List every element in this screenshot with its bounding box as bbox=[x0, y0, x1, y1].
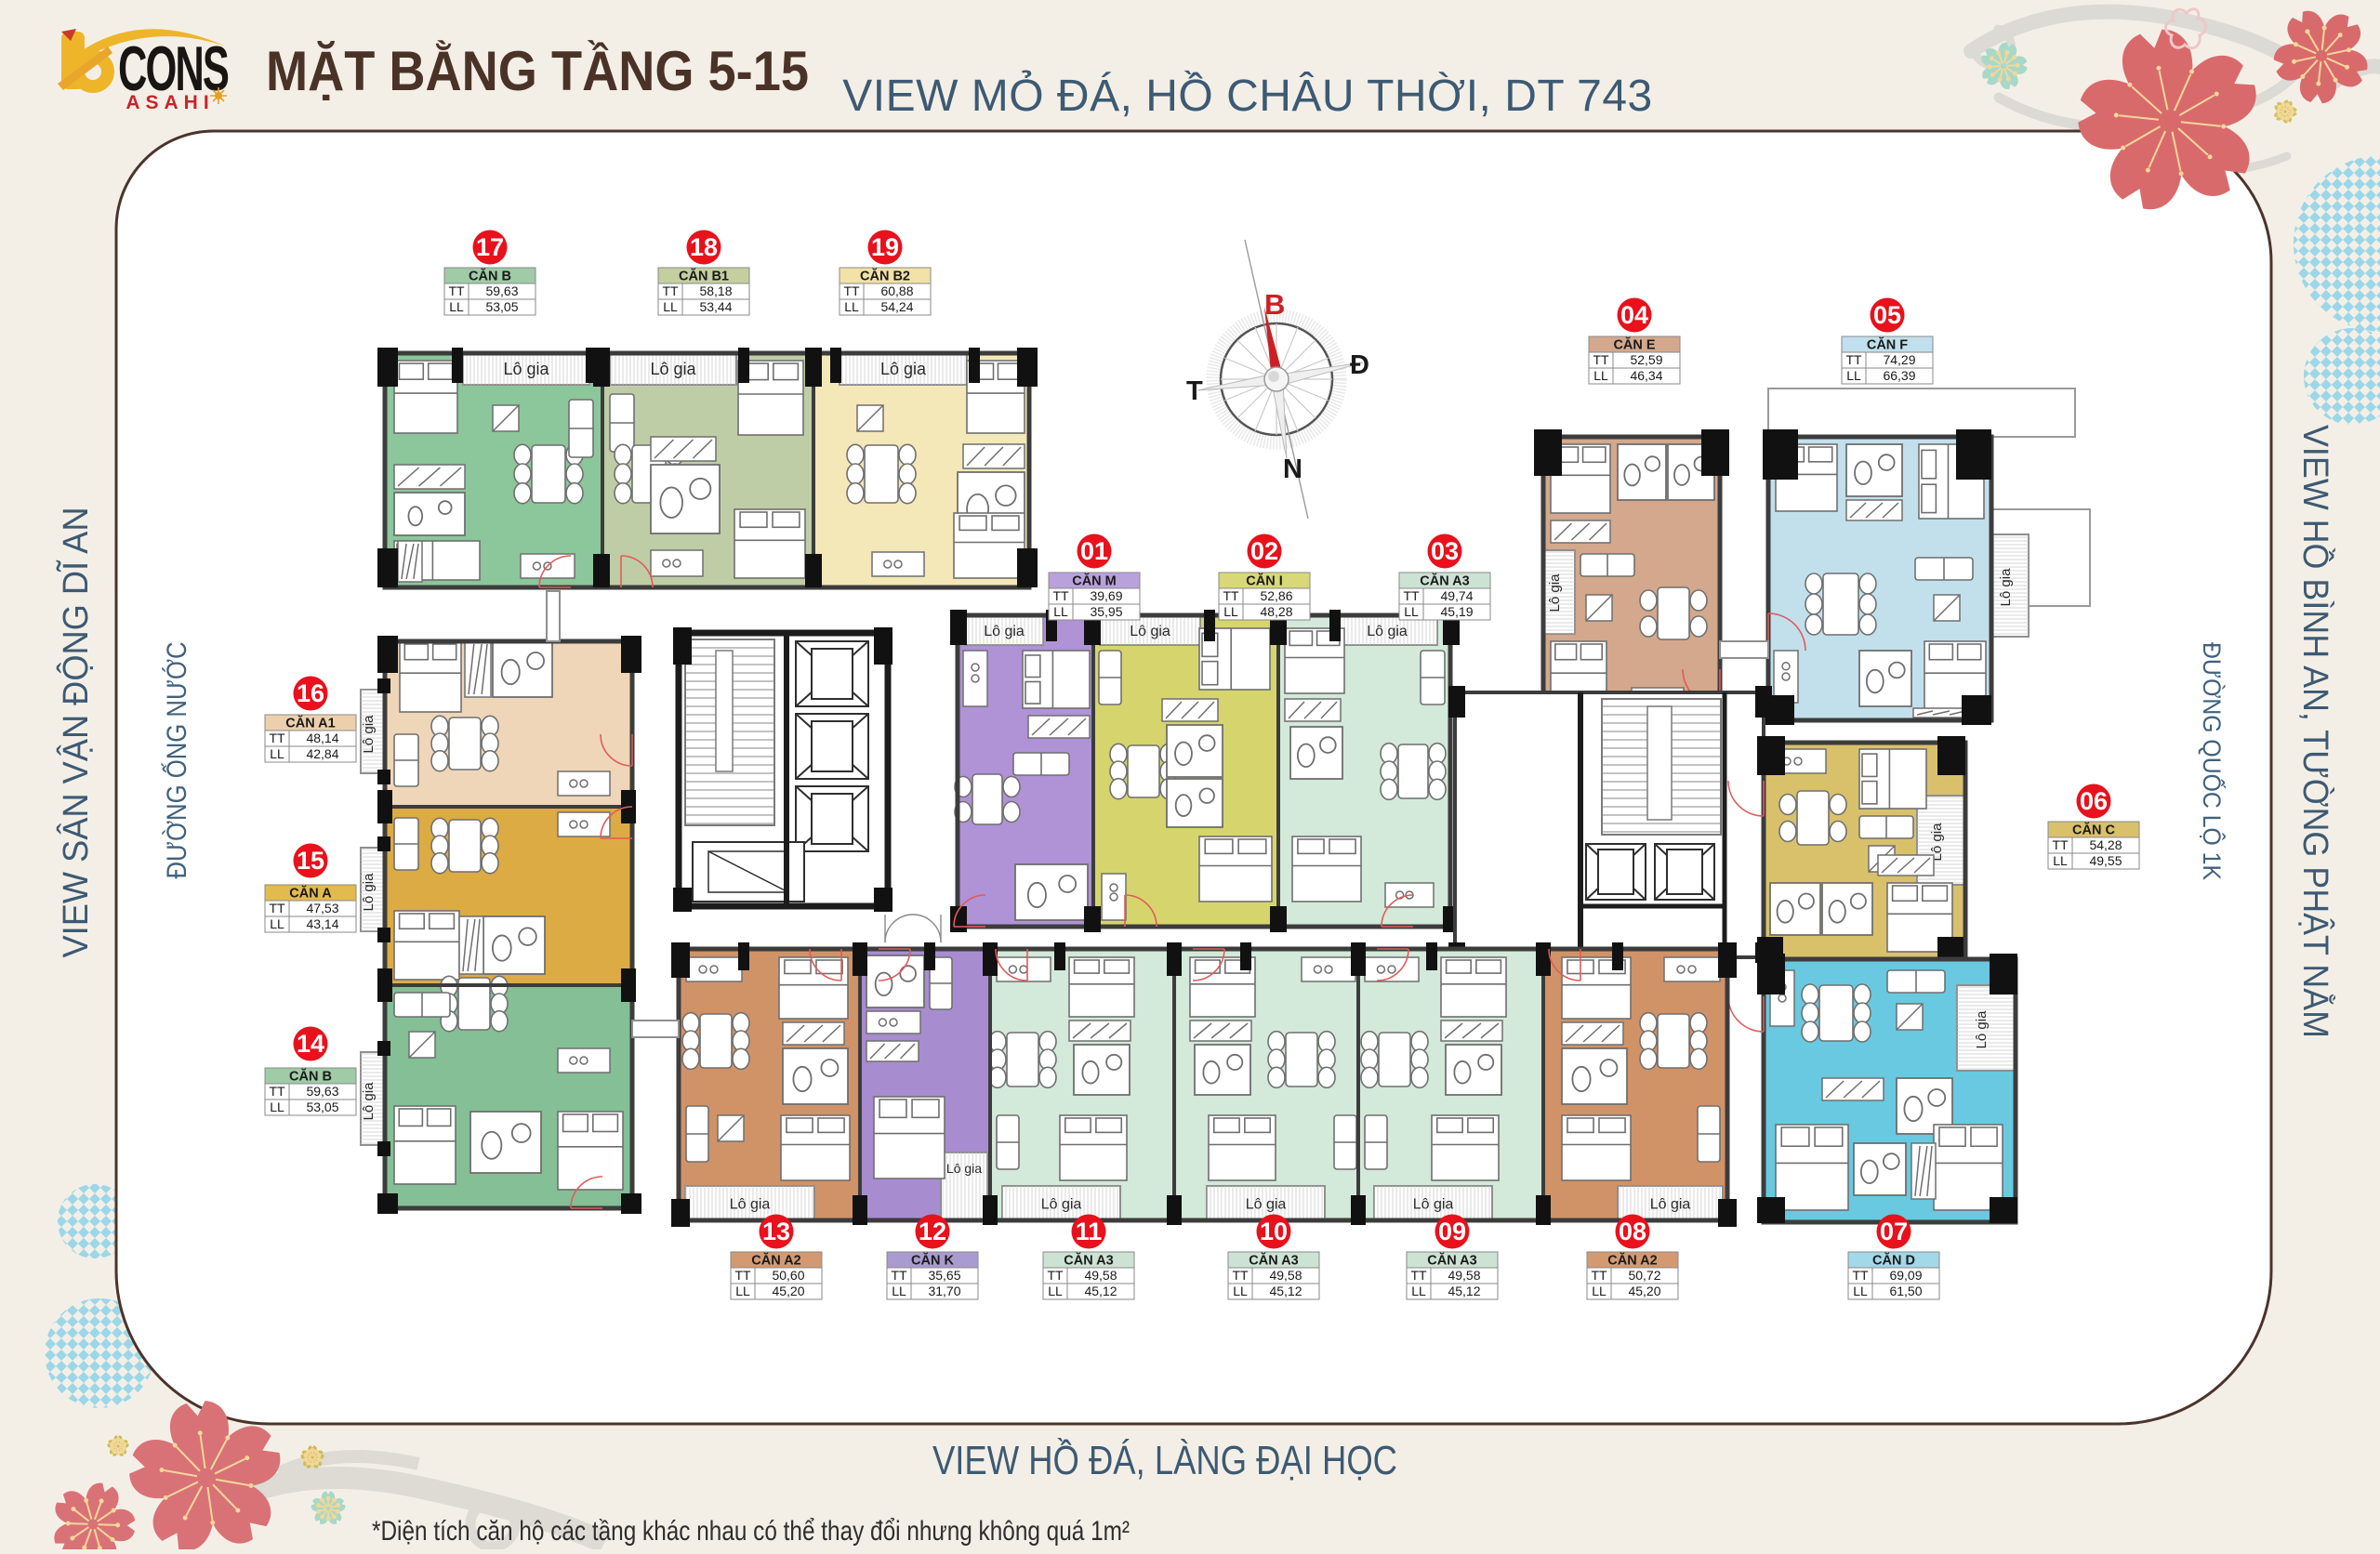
svg-text:LL: LL bbox=[270, 916, 284, 931]
svg-text:CĂN K: CĂN K bbox=[911, 1253, 954, 1269]
svg-text:74,29: 74,29 bbox=[1883, 352, 1915, 367]
svg-text:11: 11 bbox=[1076, 1218, 1103, 1245]
svg-text:LL: LL bbox=[2053, 853, 2068, 868]
svg-text:Lô gia: Lô gia bbox=[1367, 624, 1408, 639]
svg-text:CĂN A2: CĂN A2 bbox=[751, 1253, 800, 1269]
svg-text:61,50: 61,50 bbox=[1889, 1284, 1922, 1298]
svg-text:46,34: 46,34 bbox=[1630, 368, 1662, 383]
svg-text:CĂN M: CĂN M bbox=[1072, 573, 1117, 589]
svg-text:TT: TT bbox=[1852, 1268, 1869, 1283]
svg-text:LL: LL bbox=[1053, 604, 1068, 619]
svg-text:52,86: 52,86 bbox=[1260, 588, 1292, 603]
svg-text:TT: TT bbox=[734, 1268, 751, 1283]
svg-text:Lô gia: Lô gia bbox=[1246, 1197, 1287, 1213]
svg-text:CĂN A1: CĂN A1 bbox=[285, 716, 335, 731]
svg-text:LL: LL bbox=[892, 1284, 906, 1298]
svg-text:LL: LL bbox=[1411, 1284, 1426, 1298]
svg-text:ĐƯỜNG QUỐC LỘ 1K: ĐƯỜNG QUỐC LỘ 1K bbox=[2198, 642, 2228, 880]
svg-text:12: 12 bbox=[919, 1218, 946, 1245]
svg-text:45,19: 45,19 bbox=[1440, 604, 1473, 619]
svg-text:18: 18 bbox=[690, 233, 718, 261]
svg-text:31,70: 31,70 bbox=[928, 1284, 960, 1298]
svg-text:LL: LL bbox=[1404, 604, 1419, 619]
svg-text:LL: LL bbox=[449, 299, 464, 314]
svg-text:VIEW HỒ BÌNH AN, TƯỜNG PHẬT NẰ: VIEW HỒ BÌNH AN, TƯỜNG PHẬT NẰM bbox=[2295, 425, 2336, 1038]
svg-text:TT: TT bbox=[1052, 588, 1069, 603]
svg-text:Đ: Đ bbox=[1350, 350, 1369, 380]
svg-text:LL: LL bbox=[1853, 1284, 1868, 1298]
svg-text:Lô gia: Lô gia bbox=[880, 360, 927, 378]
svg-text:06: 06 bbox=[2080, 787, 2108, 815]
svg-text:T: T bbox=[1186, 376, 1203, 406]
svg-text:LL: LL bbox=[844, 299, 859, 314]
svg-text:10: 10 bbox=[1260, 1218, 1288, 1245]
svg-text:03: 03 bbox=[1431, 537, 1459, 565]
svg-text:09: 09 bbox=[1438, 1218, 1466, 1245]
svg-text:LL: LL bbox=[1846, 368, 1861, 383]
svg-text:Lô gia: Lô gia bbox=[1041, 1197, 1082, 1213]
svg-text:50,72: 50,72 bbox=[1628, 1268, 1660, 1283]
svg-text:45,20: 45,20 bbox=[772, 1284, 804, 1298]
svg-text:CĂN A2: CĂN A2 bbox=[1607, 1253, 1657, 1269]
svg-text:Lô gia: Lô gia bbox=[361, 873, 377, 912]
svg-text:Lô gia: Lô gia bbox=[984, 624, 1025, 639]
svg-text:VIEW MỎ ĐÁ, HỒ CHÂU THỜI, DT 7: VIEW MỎ ĐÁ, HỒ CHÂU THỜI, DT 743 bbox=[842, 70, 1653, 121]
svg-text:CĂN B: CĂN B bbox=[469, 269, 511, 284]
svg-text:48,28: 48,28 bbox=[1260, 604, 1292, 619]
svg-text:54,24: 54,24 bbox=[880, 299, 913, 314]
svg-text:CĂN B2: CĂN B2 bbox=[860, 269, 910, 284]
svg-text:TT: TT bbox=[662, 283, 679, 298]
svg-text:Lô gia: Lô gia bbox=[503, 360, 549, 378]
svg-text:Lô gia: Lô gia bbox=[361, 1082, 377, 1121]
svg-text:01: 01 bbox=[1080, 537, 1108, 565]
svg-text:TT: TT bbox=[1223, 588, 1239, 603]
svg-text:45,20: 45,20 bbox=[1628, 1284, 1660, 1298]
svg-text:LL: LL bbox=[663, 299, 678, 314]
svg-text:CĂN B1: CĂN B1 bbox=[679, 269, 729, 284]
svg-text:Lô gia: Lô gia bbox=[1130, 624, 1170, 639]
svg-text:Lô gia: Lô gia bbox=[1547, 573, 1563, 612]
svg-text:TT: TT bbox=[1403, 588, 1420, 603]
svg-text:*Diện tích căn hộ các tầng khá: *Diện tích căn hộ các tầng khác nhau có … bbox=[372, 1516, 1130, 1547]
svg-text:LL: LL bbox=[1593, 368, 1608, 383]
svg-text:VIEW SÂN VẬN ĐỘNG DĨ AN: VIEW SÂN VẬN ĐỘNG DĨ AN bbox=[55, 507, 96, 958]
svg-text:TT: TT bbox=[1047, 1268, 1064, 1283]
svg-text:TT: TT bbox=[1845, 352, 1862, 367]
svg-text:Lô gia: Lô gia bbox=[650, 360, 696, 378]
svg-text:LL: LL bbox=[735, 1284, 750, 1298]
svg-text:16: 16 bbox=[297, 679, 324, 707]
svg-text:47,53: 47,53 bbox=[306, 901, 338, 915]
svg-text:Lô gia: Lô gia bbox=[1413, 1197, 1454, 1213]
svg-text:49,55: 49,55 bbox=[2089, 853, 2122, 868]
svg-text:CĂN A3: CĂN A3 bbox=[1420, 573, 1469, 589]
svg-text:CĂN D: CĂN D bbox=[1872, 1253, 1915, 1269]
svg-text:17: 17 bbox=[476, 233, 504, 261]
svg-text:13: 13 bbox=[762, 1218, 790, 1245]
svg-text:LL: LL bbox=[270, 746, 284, 761]
svg-text:59,63: 59,63 bbox=[485, 283, 518, 298]
svg-text:TT: TT bbox=[2052, 837, 2069, 852]
svg-text:LL: LL bbox=[1592, 1284, 1606, 1298]
svg-text:45,12: 45,12 bbox=[1084, 1284, 1117, 1298]
svg-text:49,58: 49,58 bbox=[1084, 1268, 1117, 1283]
svg-text:42,84: 42,84 bbox=[306, 746, 338, 761]
svg-text:08: 08 bbox=[1619, 1218, 1646, 1245]
svg-text:59,63: 59,63 bbox=[306, 1084, 338, 1099]
svg-text:CĂN B: CĂN B bbox=[289, 1069, 332, 1085]
svg-text:CĂN F: CĂN F bbox=[1867, 337, 1908, 353]
svg-text:CĂN C: CĂN C bbox=[2072, 823, 2115, 838]
svg-text:49,74: 49,74 bbox=[1440, 588, 1473, 603]
svg-text:45,12: 45,12 bbox=[1448, 1284, 1480, 1298]
svg-text:TT: TT bbox=[448, 283, 465, 298]
svg-text:43,14: 43,14 bbox=[306, 916, 338, 931]
svg-text:TT: TT bbox=[269, 1084, 285, 1099]
svg-text:69,09: 69,09 bbox=[1889, 1268, 1922, 1283]
svg-text:49,58: 49,58 bbox=[1269, 1268, 1302, 1283]
svg-text:45,12: 45,12 bbox=[1269, 1284, 1302, 1298]
svg-text:LL: LL bbox=[270, 1100, 284, 1114]
svg-text:N: N bbox=[1283, 454, 1302, 484]
svg-text:LL: LL bbox=[1233, 1284, 1248, 1298]
svg-text:60,88: 60,88 bbox=[880, 283, 913, 298]
svg-text:02: 02 bbox=[1250, 537, 1278, 565]
svg-text:Lô gia: Lô gia bbox=[1974, 1010, 1990, 1049]
svg-text:53,05: 53,05 bbox=[306, 1100, 338, 1114]
svg-text:50,60: 50,60 bbox=[772, 1268, 804, 1283]
svg-text:MẶT BẰNG TẦNG 5-15: MẶT BẰNG TẦNG 5-15 bbox=[266, 40, 809, 102]
svg-text:TT: TT bbox=[269, 731, 285, 745]
svg-text:04: 04 bbox=[1620, 301, 1648, 329]
svg-text:Lô gia: Lô gia bbox=[946, 1161, 982, 1176]
svg-text:19: 19 bbox=[871, 233, 899, 261]
svg-text:ĐƯỜNG ỐNG NƯỚC: ĐƯỜNG ỐNG NƯỚC bbox=[161, 642, 192, 879]
svg-text:LL: LL bbox=[1048, 1284, 1063, 1298]
svg-text:VIEW HỒ ĐÁ, LÀNG ĐẠI HỌC: VIEW HỒ ĐÁ, LÀNG ĐẠI HỌC bbox=[932, 1437, 1397, 1483]
svg-text:Lô gia: Lô gia bbox=[730, 1197, 771, 1213]
svg-text:Lô gia: Lô gia bbox=[361, 715, 377, 754]
svg-text:53,44: 53,44 bbox=[699, 299, 732, 314]
svg-text:15: 15 bbox=[297, 847, 324, 875]
svg-text:TT: TT bbox=[1591, 1268, 1607, 1283]
svg-text:05: 05 bbox=[1873, 301, 1901, 329]
svg-text:TT: TT bbox=[1593, 352, 1609, 367]
svg-text:TT: TT bbox=[843, 283, 860, 298]
svg-text:66,39: 66,39 bbox=[1883, 368, 1915, 383]
svg-text:LL: LL bbox=[1223, 604, 1238, 619]
svg-text:CĂN A3: CĂN A3 bbox=[1064, 1253, 1113, 1269]
svg-text:TT: TT bbox=[1410, 1268, 1427, 1283]
svg-text:14: 14 bbox=[297, 1030, 324, 1058]
svg-text:Lô gia: Lô gia bbox=[1998, 568, 2014, 607]
svg-text:ASAHI: ASAHI bbox=[126, 92, 214, 113]
svg-text:07: 07 bbox=[1880, 1218, 1908, 1245]
svg-text:35,65: 35,65 bbox=[928, 1268, 960, 1283]
svg-text:53,05: 53,05 bbox=[485, 299, 518, 314]
svg-text:CĂN A3: CĂN A3 bbox=[1427, 1253, 1476, 1269]
svg-text:CĂN I: CĂN I bbox=[1246, 573, 1282, 589]
svg-text:TT: TT bbox=[891, 1268, 907, 1283]
svg-text:CĂN A: CĂN A bbox=[289, 886, 332, 902]
svg-text:CĂN E: CĂN E bbox=[1613, 337, 1655, 353]
svg-text:48,14: 48,14 bbox=[306, 731, 338, 745]
svg-text:B: B bbox=[1264, 288, 1285, 321]
svg-text:Lô gia: Lô gia bbox=[1650, 1197, 1691, 1213]
svg-text:49,58: 49,58 bbox=[1448, 1268, 1480, 1283]
svg-text:54,28: 54,28 bbox=[2089, 837, 2122, 852]
svg-text:39,69: 39,69 bbox=[1090, 588, 1122, 603]
svg-text:TT: TT bbox=[269, 901, 285, 915]
svg-text:58,18: 58,18 bbox=[699, 283, 732, 298]
svg-text:35,95: 35,95 bbox=[1090, 604, 1122, 619]
svg-text:CĂN A3: CĂN A3 bbox=[1249, 1253, 1298, 1269]
svg-text:TT: TT bbox=[1232, 1268, 1249, 1283]
svg-text:52,59: 52,59 bbox=[1630, 352, 1662, 367]
